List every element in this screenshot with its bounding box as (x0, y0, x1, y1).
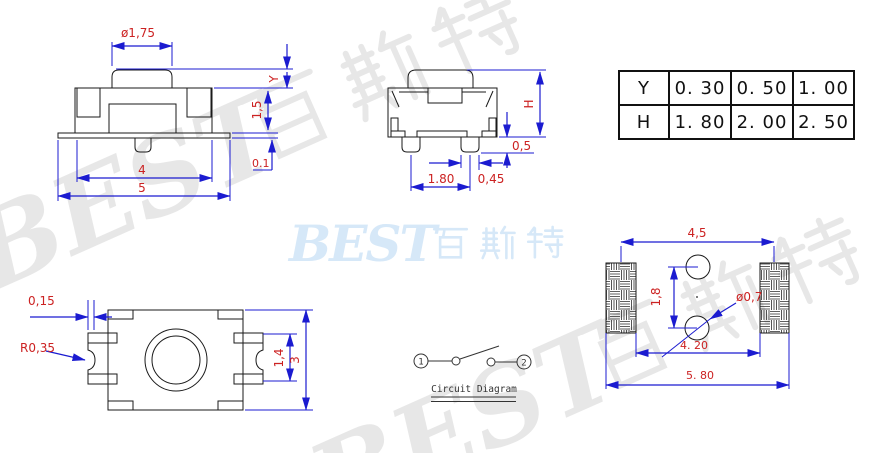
spec-cell: 1. 00 (793, 71, 854, 105)
watermark-latin-text: BEST (289, 297, 643, 453)
button-stem-notch (428, 88, 462, 103)
spec-cell: 2. 50 (793, 105, 854, 139)
base-center-strip (417, 131, 467, 137)
side-tab-right (489, 118, 496, 131)
dim-notch-radius: R0,35 (20, 341, 85, 360)
spec-cell: 0. 50 (731, 71, 793, 105)
engineering-drawing-sheet: BEST BEST BEST (0, 0, 879, 453)
base-step-right (482, 131, 496, 137)
terminal-tab-left (88, 333, 108, 384)
watermark-cjk-glyphs (434, 227, 562, 258)
dim-button-diameter: ø1,75 (112, 26, 172, 66)
dim-label: 4 (138, 163, 146, 177)
watermark-latin-text: BEST (287, 214, 440, 273)
tab-joint (234, 333, 243, 343)
terminal-leg-right (461, 137, 479, 152)
spec-table: Y 0. 30 0. 50 1. 00 H 1. 80 2. 00 2. 50 (618, 70, 855, 140)
spec-cell: 0. 30 (669, 71, 731, 105)
row-label-h: H (619, 105, 669, 139)
watermark-diagonal-upper: BEST (0, 0, 541, 316)
dim-label: ø0,7 (736, 290, 762, 304)
cover-corner-slants (392, 91, 493, 107)
dim-label: 4. 20 (680, 339, 708, 352)
top-view: 0,15 R0,35 1,4 3 (20, 294, 313, 410)
tab-fold-lines (88, 343, 263, 374)
dim-label: 0,5 (512, 139, 531, 153)
terminal-tab-right (243, 333, 263, 384)
dim-label: ø1,75 (121, 26, 155, 40)
button-cap-outline (112, 70, 172, 88)
tab-joint (234, 374, 243, 384)
table-row-y: Y 0. 30 0. 50 1. 00 (619, 71, 854, 105)
spec-cell: 1. 80 (669, 105, 731, 139)
dim-label: Y (267, 75, 281, 84)
center-mark (696, 296, 698, 298)
dim-label: 1,8 (649, 287, 663, 306)
dim-label: 5. 80 (686, 369, 714, 382)
corner-steps (108, 310, 243, 410)
dim-label: 5 (138, 181, 146, 195)
dim-edge-offset: 0,15 (28, 294, 112, 330)
side-view: H 0,5 0,45 1.80 (388, 70, 546, 191)
switch-outline-side (388, 70, 497, 152)
dim-label: R0,35 (20, 341, 55, 355)
dim-label: 4,5 (687, 226, 706, 240)
dim-label: 1.80 (428, 172, 455, 186)
dim-travel-y: Y (116, 44, 293, 88)
drawing-canvas: BEST BEST BEST (0, 0, 879, 453)
base-step-left (391, 131, 405, 137)
terminal-leg-left (402, 137, 420, 152)
solder-pad-right (760, 263, 789, 333)
switch-outline-top (88, 310, 263, 410)
table-row-h: H 1. 80 2. 00 2. 50 (619, 105, 854, 139)
button-inner-circle (152, 336, 200, 384)
button-outer-circle (145, 329, 207, 391)
dim-label: 0,15 (28, 294, 55, 308)
switch-body-outline (108, 310, 243, 410)
circuit-caption: Circuit Diagram (431, 384, 517, 395)
side-tab-left (391, 118, 398, 131)
watermark-cjk-glyphs (239, 0, 528, 163)
switch-body-outline (388, 88, 497, 137)
spec-cell: 2. 00 (731, 105, 793, 139)
solder-pad-left (606, 263, 636, 333)
dim-label: 3 (288, 356, 302, 364)
dim-label: H (522, 99, 536, 108)
dim-label: 0.1 (252, 157, 270, 170)
row-label-y: Y (619, 71, 669, 105)
watermark-center-logo: BEST (287, 214, 562, 273)
tab-joint (108, 333, 117, 343)
dim-label: 0,45 (478, 172, 505, 186)
tab-joint (108, 374, 117, 384)
body-corner-left (77, 88, 100, 117)
dim-label: 1,4 (272, 348, 286, 367)
dim-label: 1,5 (250, 100, 264, 119)
terminal-1-number: 1 (418, 358, 423, 368)
terminal-2-number: 2 (521, 359, 526, 369)
